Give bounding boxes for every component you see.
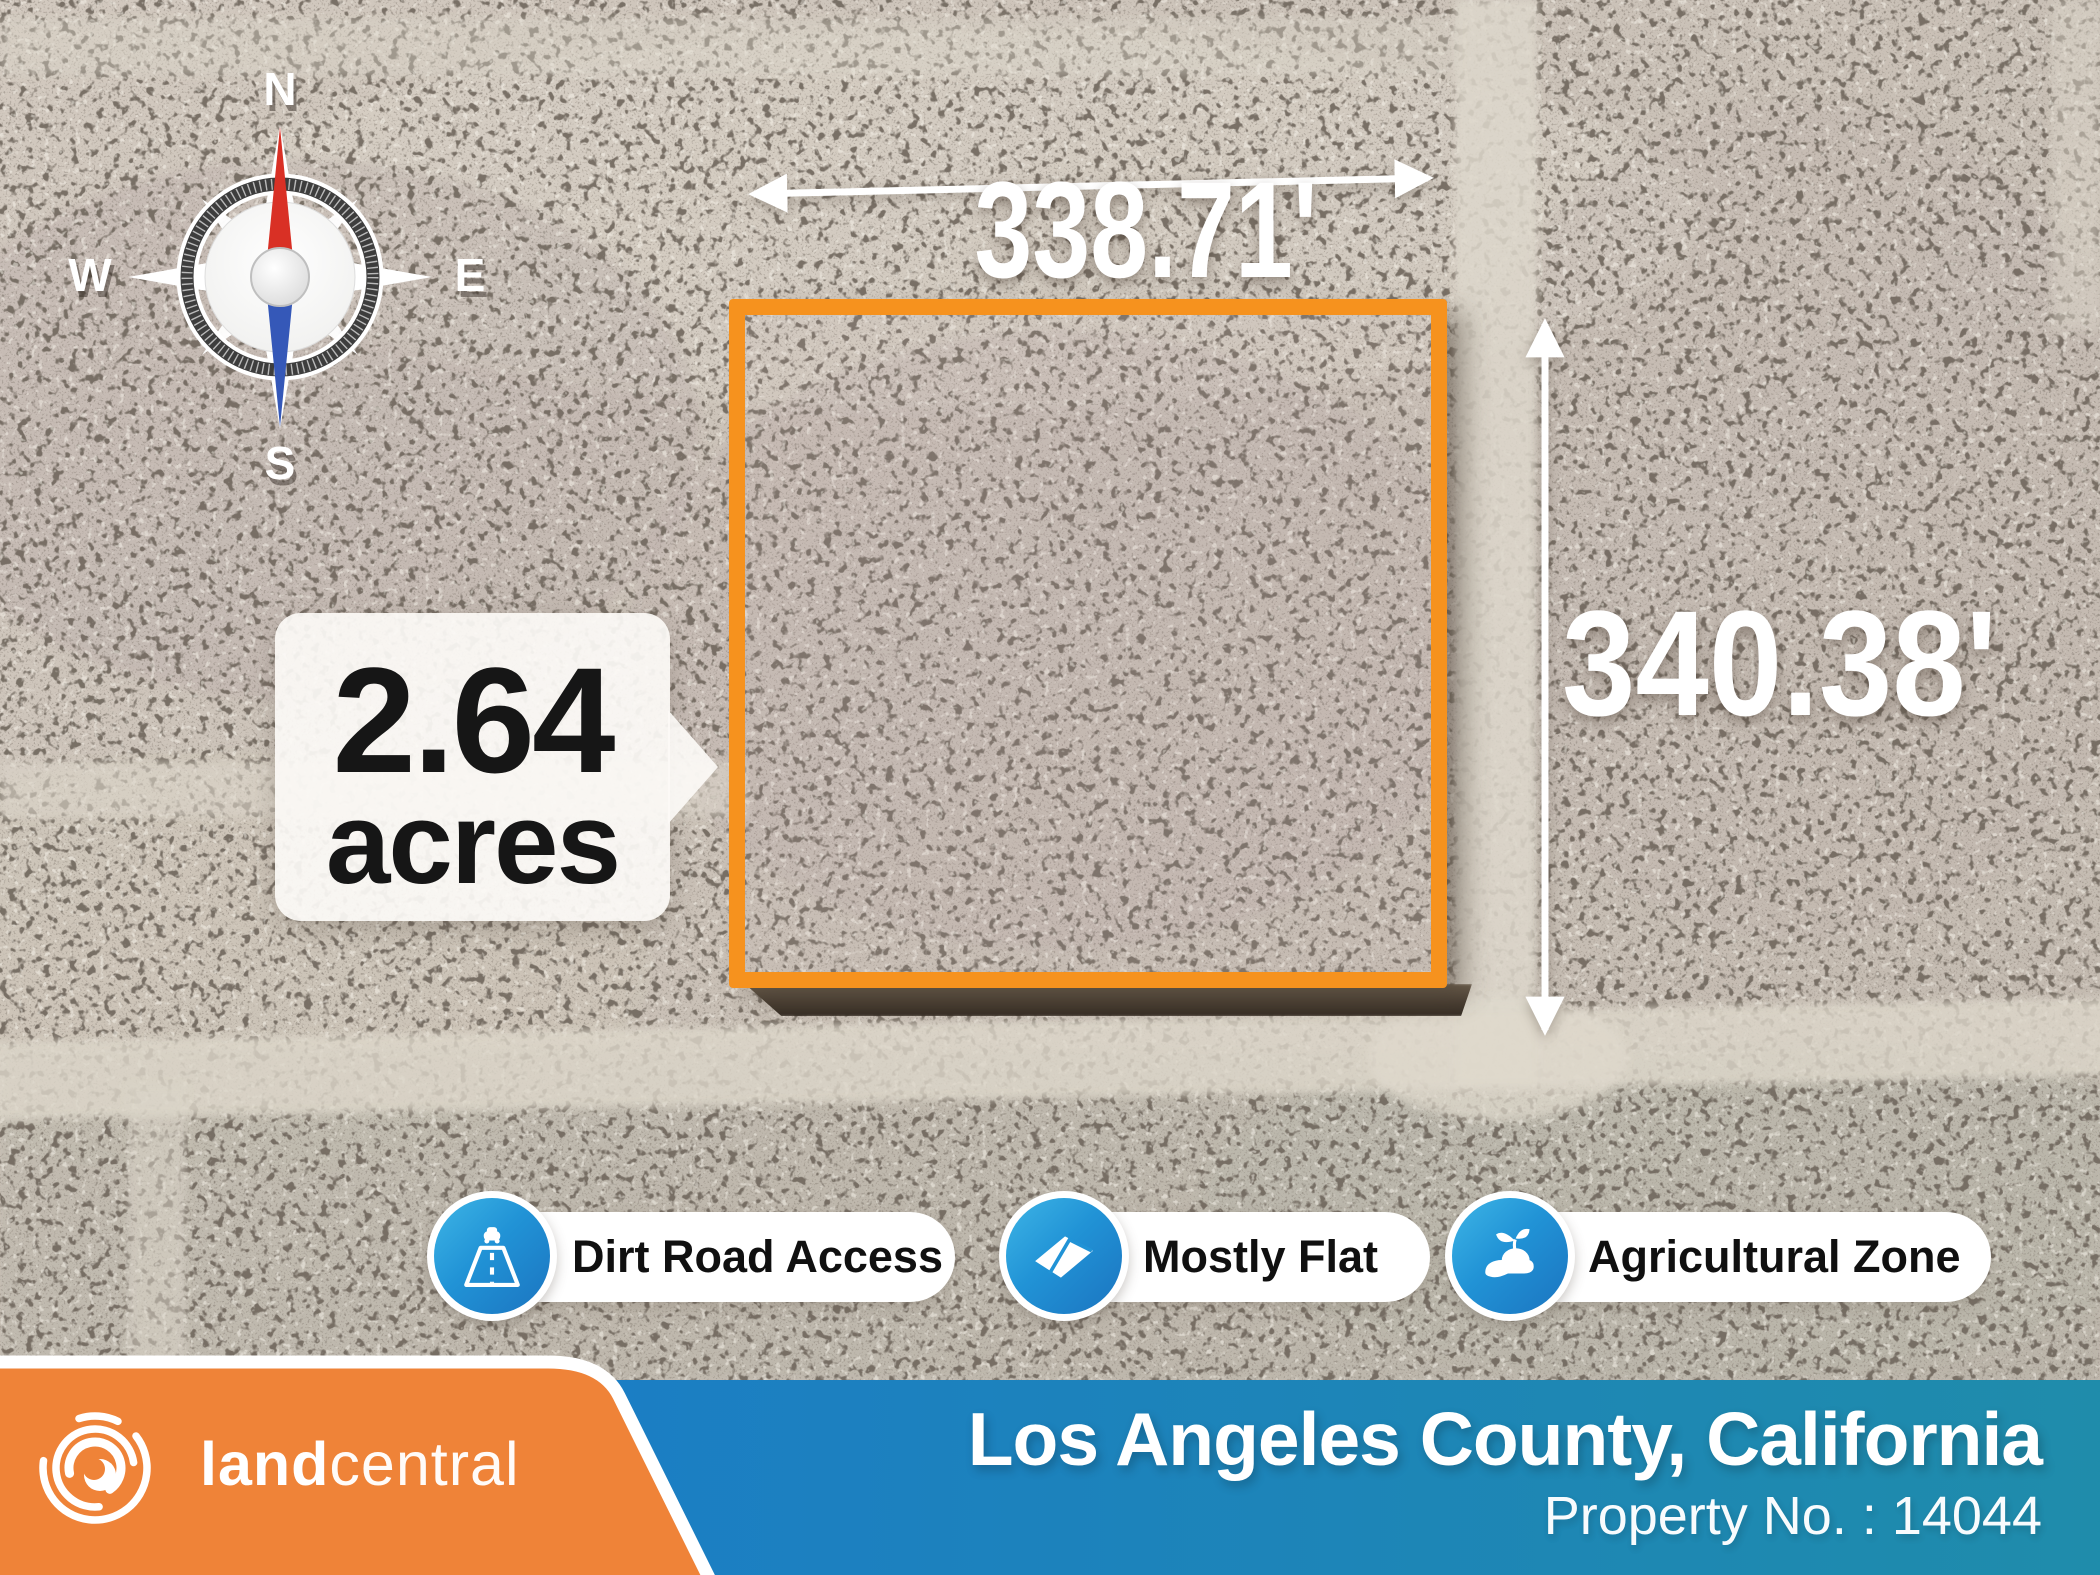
height-dimension-label: 340.38' bbox=[1562, 588, 1997, 738]
badge-label: Agricultural Zone bbox=[1588, 1231, 1961, 1283]
parcel-boundary bbox=[729, 299, 1447, 988]
brand-name-light: central bbox=[329, 1430, 519, 1498]
compass-n-label: N bbox=[263, 63, 296, 115]
compass-w-label: W bbox=[68, 249, 112, 301]
horizontal-dirt-road bbox=[0, 998, 2100, 1121]
road-icon bbox=[459, 1223, 525, 1289]
flat-land-icon bbox=[1031, 1223, 1097, 1289]
badge-dirt-road-circle bbox=[427, 1191, 557, 1321]
svg-text:E: E bbox=[458, 255, 489, 307]
parcel-3d-edge bbox=[745, 984, 1472, 1016]
svg-text:S: S bbox=[268, 443, 299, 495]
compass-ring bbox=[187, 184, 373, 370]
badge-agricultural-circle bbox=[1445, 1191, 1575, 1321]
hand-sprout-icon bbox=[1477, 1223, 1543, 1289]
badge-label: Dirt Road Access bbox=[572, 1231, 943, 1283]
compass-needle-south bbox=[265, 275, 295, 427]
compass-star bbox=[128, 125, 432, 429]
badge-label: Mostly Flat bbox=[1143, 1231, 1378, 1283]
property-number: Property No. : 14044 bbox=[968, 1489, 2042, 1543]
compass-hub bbox=[251, 248, 309, 306]
compass-e-label: E bbox=[455, 249, 486, 301]
brand-name-bold: land bbox=[200, 1430, 329, 1498]
location-title: Los Angeles County, California bbox=[968, 1402, 2042, 1477]
badge-mostly-flat-circle bbox=[999, 1191, 1129, 1321]
svg-text:N: N bbox=[266, 69, 299, 121]
width-dimension-label: 338.71' bbox=[974, 162, 1317, 299]
compass-rose: NE SW N E S W bbox=[40, 37, 520, 517]
svg-text:W: W bbox=[71, 255, 115, 307]
property-flyer: NE SW N E S W 338.71' 340.38' 2.64 bbox=[0, 0, 2100, 1575]
acreage-unit: acres bbox=[326, 797, 619, 890]
brand-wordmark: landcentral bbox=[200, 1434, 520, 1495]
acreage-callout: 2.64 acres bbox=[275, 613, 670, 921]
compass-s-label: S bbox=[265, 437, 296, 489]
vertical-dirt-road bbox=[1455, 0, 1537, 1085]
landcentral-swirl-logo bbox=[22, 1395, 168, 1541]
compass-needle-north bbox=[265, 127, 295, 279]
compass-letters: NE SW N E S W bbox=[68, 63, 488, 495]
acreage-value: 2.64 bbox=[333, 645, 613, 795]
